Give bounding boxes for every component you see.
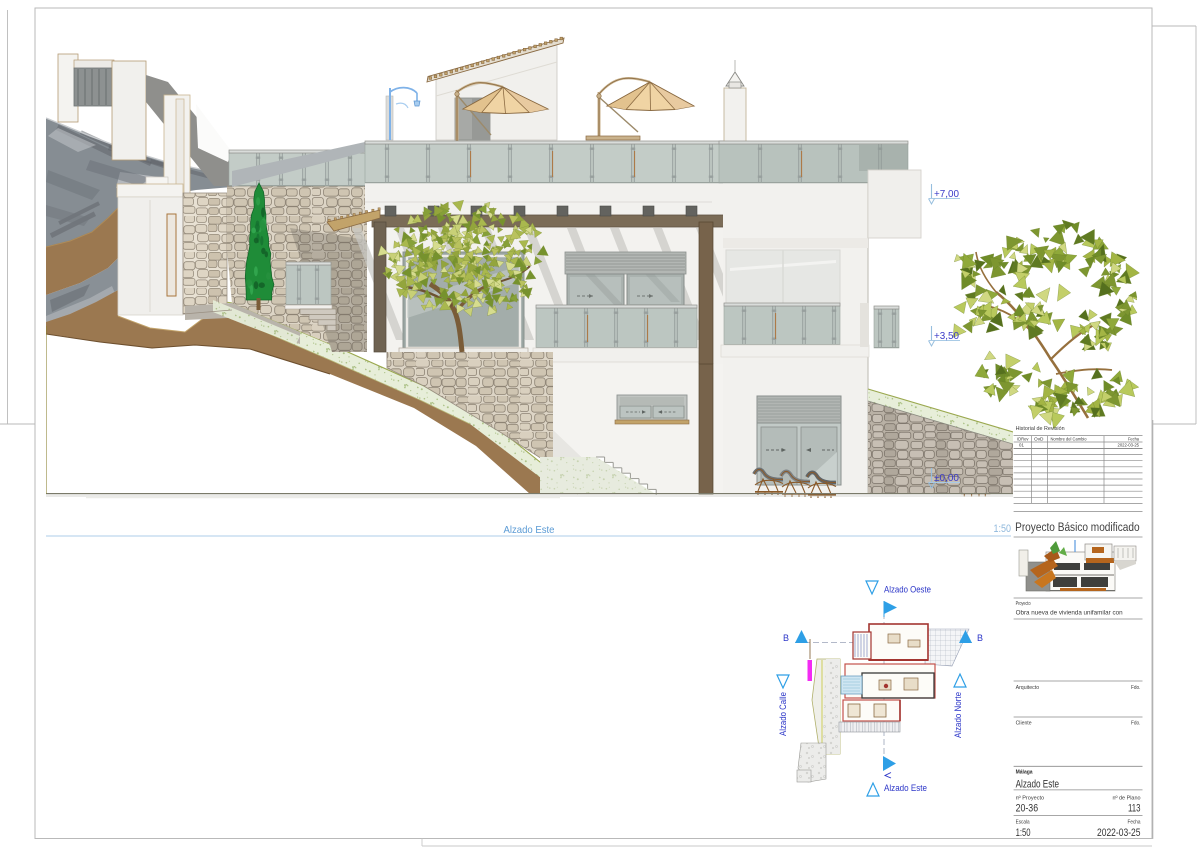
svg-text:Proyecto Básico modificado: Proyecto Básico modificado bbox=[1015, 520, 1140, 534]
svg-text:Málaga: Málaga bbox=[1016, 770, 1034, 776]
svg-text:Fdo.: Fdo. bbox=[1131, 721, 1141, 727]
svg-text:1:50: 1:50 bbox=[994, 523, 1012, 535]
svg-text:Fecha: Fecha bbox=[1128, 436, 1140, 441]
svg-text:Alzado Este: Alzado Este bbox=[884, 783, 927, 793]
svg-text:Alzado Este: Alzado Este bbox=[1016, 779, 1060, 791]
svg-text:+7,00: +7,00 bbox=[934, 188, 959, 200]
svg-text:nº de Plano: nº de Plano bbox=[1113, 795, 1141, 801]
svg-text:IDRev: IDRev bbox=[1017, 436, 1029, 441]
svg-text:OvD: OvD bbox=[1034, 436, 1044, 441]
svg-text:Alzado Este: Alzado Este bbox=[504, 524, 555, 536]
svg-text:20-36: 20-36 bbox=[1016, 803, 1039, 815]
svg-text:113: 113 bbox=[1128, 803, 1141, 815]
svg-text:Nombre del Cambio: Nombre del Cambio bbox=[1051, 436, 1088, 441]
svg-text:Fdo.: Fdo. bbox=[1131, 685, 1141, 691]
svg-text:01: 01 bbox=[1019, 443, 1024, 448]
svg-text:Proyecto: Proyecto bbox=[1016, 601, 1031, 607]
svg-text:Alzado Norte: Alzado Norte bbox=[953, 692, 963, 738]
svg-text:±0,00: ±0,00 bbox=[934, 472, 959, 484]
svg-text:Alzado Calle: Alzado Calle bbox=[778, 692, 788, 736]
svg-text:nº Proyecto: nº Proyecto bbox=[1016, 795, 1045, 801]
svg-text:B: B bbox=[977, 633, 983, 643]
svg-text:+3,50: +3,50 bbox=[934, 330, 959, 342]
svg-text:Historial de Revisión: Historial de Revisión bbox=[1016, 426, 1065, 432]
svg-text:Cliente: Cliente bbox=[1016, 721, 1032, 727]
svg-text:2022-03-25: 2022-03-25 bbox=[1097, 827, 1141, 839]
svg-text:Escala: Escala bbox=[1016, 820, 1030, 826]
svg-text:B: B bbox=[783, 633, 789, 643]
svg-text:Obra nueva de vivienda unifami: Obra nueva de vivienda unifamilar con bbox=[1016, 610, 1124, 617]
svg-text:Arquitecto: Arquitecto bbox=[1016, 685, 1040, 691]
svg-text:1:50: 1:50 bbox=[1016, 827, 1031, 839]
svg-text:Alzado Oeste: Alzado Oeste bbox=[884, 585, 931, 595]
svg-text:2022-03-25: 2022-03-25 bbox=[1118, 443, 1140, 448]
svg-text:Fecha: Fecha bbox=[1128, 820, 1141, 826]
